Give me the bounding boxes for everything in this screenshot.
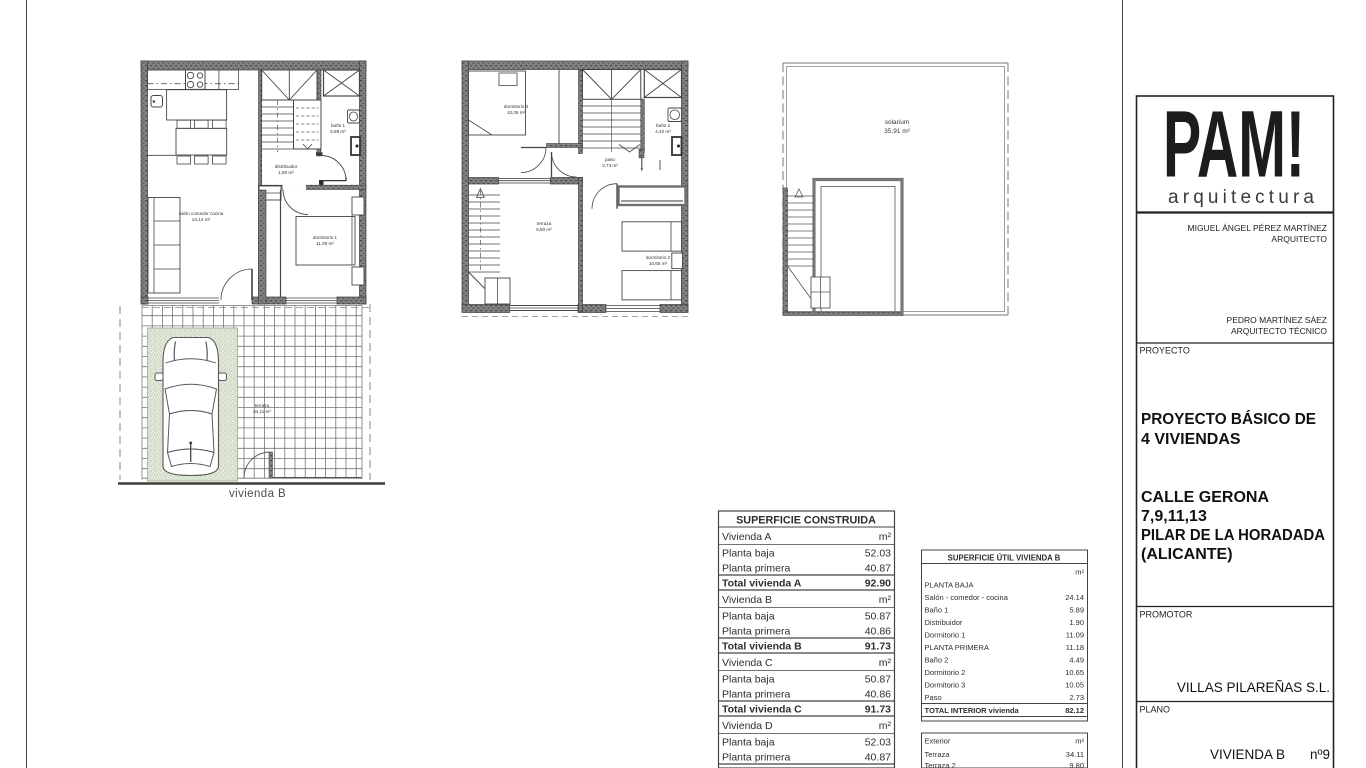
- svg-text:35,91 m²: 35,91 m²: [884, 128, 910, 135]
- svg-text:4,40 m²: 4,40 m²: [655, 129, 671, 134]
- svg-text:Vivienda A: Vivienda A: [722, 531, 771, 543]
- svg-text:Dormitorio 3: Dormitorio 3: [925, 681, 966, 690]
- svg-text:11.18: 11.18: [1066, 643, 1084, 652]
- svg-text:34.11: 34.11: [1066, 750, 1084, 759]
- svg-text:m²: m²: [1075, 568, 1084, 577]
- svg-text:Baño 1: Baño 1: [925, 606, 949, 615]
- svg-text:m²: m²: [1075, 737, 1084, 746]
- svg-text:terraza: terraza: [537, 221, 552, 226]
- svg-text:Baño 2: Baño 2: [925, 656, 949, 665]
- svg-text:m²: m²: [879, 531, 892, 543]
- svg-text:Salón - comedor - cocina: Salón - comedor - cocina: [925, 593, 1009, 602]
- svg-text:10,65 m²: 10,65 m²: [649, 261, 668, 266]
- svg-text:ARQUITECTO: ARQUITECTO: [1271, 234, 1327, 244]
- svg-text:Planta baja: Planta baja: [722, 737, 775, 749]
- svg-text:10,05 m²: 10,05 m²: [507, 110, 526, 115]
- svg-text:1.90: 1.90: [1069, 618, 1084, 627]
- svg-text:Dormitorio 2: Dormitorio 2: [925, 668, 966, 677]
- svg-text:SUPERFICIE CONSTRUIDA: SUPERFICIE CONSTRUIDA: [736, 515, 876, 527]
- svg-text:Planta baja: Planta baja: [722, 674, 775, 686]
- svg-text:8,80 m²: 8,80 m²: [536, 227, 552, 232]
- svg-text:Planta primera: Planta primera: [722, 689, 790, 701]
- svg-text:PLANTA PRIMERA: PLANTA PRIMERA: [925, 643, 989, 652]
- svg-text:Vivienda B: Vivienda B: [722, 594, 772, 606]
- svg-text:40.86: 40.86: [865, 626, 891, 638]
- svg-text:Planta baja: Planta baja: [722, 548, 775, 560]
- svg-text:PEDRO MARTÍNEZ SÁEZ: PEDRO MARTÍNEZ SÁEZ: [1227, 315, 1327, 325]
- svg-text:10.65: 10.65: [1065, 668, 1084, 677]
- svg-text:VILLAS PILAREÑAS S.L.: VILLAS PILAREÑAS S.L.: [1177, 680, 1330, 695]
- svg-text:4.49: 4.49: [1069, 656, 1084, 665]
- svg-text:TOTAL INTERIOR vivienda: TOTAL INTERIOR vivienda: [925, 706, 1020, 715]
- svg-text:52.03: 52.03: [865, 737, 891, 749]
- svg-text:10.05: 10.05: [1065, 681, 1084, 690]
- svg-text:5,89 m²: 5,89 m²: [330, 129, 346, 134]
- svg-text:(ALICANTE): (ALICANTE): [1141, 546, 1233, 563]
- svg-text:PAM!: PAM!: [1163, 92, 1305, 198]
- svg-text:CALLE GERONA: CALLE GERONA: [1141, 489, 1269, 506]
- svg-text:m²: m²: [879, 720, 892, 732]
- svg-text:91.73: 91.73: [865, 641, 891, 653]
- svg-text:PROMOTOR: PROMOTOR: [1140, 610, 1193, 620]
- svg-text:7,9,11,13: 7,9,11,13: [1141, 508, 1207, 525]
- svg-text:PLANO: PLANO: [1140, 705, 1171, 715]
- svg-text:2.73: 2.73: [1069, 693, 1084, 702]
- svg-text:Planta primera: Planta primera: [722, 752, 790, 764]
- svg-text:52.03: 52.03: [865, 548, 891, 560]
- svg-text:2,73 m²: 2,73 m²: [602, 163, 618, 168]
- svg-text:Planta primera: Planta primera: [722, 563, 790, 575]
- svg-text:92.90: 92.90: [865, 578, 891, 590]
- svg-text:dormitorio 1: dormitorio 1: [313, 235, 338, 240]
- svg-text:Paso: Paso: [925, 693, 942, 702]
- svg-text:9.80: 9.80: [1069, 761, 1084, 768]
- svg-text:Terraza 2: Terraza 2: [925, 761, 956, 768]
- svg-text:Total vivienda B: Total vivienda B: [722, 641, 802, 653]
- svg-text:PROYECTO: PROYECTO: [1140, 346, 1190, 356]
- svg-text:SUPERFICIE ÚTIL VIVIENDA B: SUPERFICIE ÚTIL VIVIENDA B: [948, 554, 1061, 563]
- svg-text:40.87: 40.87: [865, 752, 891, 764]
- svg-text:paso: paso: [605, 157, 615, 162]
- svg-text:nº9: nº9: [1310, 747, 1330, 762]
- svg-text:24.14: 24.14: [1065, 593, 1084, 602]
- svg-text:terraza: terraza: [255, 403, 270, 408]
- svg-text:5.89: 5.89: [1069, 606, 1084, 615]
- svg-text:Distribuidor: Distribuidor: [925, 618, 963, 627]
- svg-text:Dormitorio 1: Dormitorio 1: [925, 631, 966, 640]
- svg-text:VIVIENDA B: VIVIENDA B: [1210, 747, 1285, 762]
- svg-text:24,14 m²: 24,14 m²: [192, 217, 211, 222]
- svg-text:PROYECTO BÁSICO DE: PROYECTO BÁSICO DE: [1141, 409, 1316, 428]
- svg-text:ARQUITECTO TÉCNICO: ARQUITECTO TÉCNICO: [1231, 326, 1327, 336]
- svg-text:Total vivienda A: Total vivienda A: [722, 578, 802, 590]
- svg-text:40.87: 40.87: [865, 563, 891, 575]
- svg-text:m²: m²: [879, 657, 892, 669]
- svg-text:50.87: 50.87: [865, 674, 891, 686]
- svg-text:MIGUEL ÁNGEL PÉREZ MARTÍNEZ: MIGUEL ÁNGEL PÉREZ MARTÍNEZ: [1188, 223, 1328, 233]
- svg-text:dormitorio 2: dormitorio 2: [646, 255, 671, 260]
- svg-text:40.86: 40.86: [865, 689, 891, 701]
- svg-text:m²: m²: [879, 594, 892, 606]
- svg-text:Terraza: Terraza: [925, 750, 951, 759]
- svg-text:82.12: 82.12: [1065, 706, 1084, 715]
- svg-text:91.73: 91.73: [865, 704, 891, 716]
- svg-text:Total vivienda C: Total vivienda C: [722, 704, 802, 716]
- svg-text:baño 2: baño 2: [656, 123, 670, 128]
- svg-text:50.87: 50.87: [865, 611, 891, 623]
- svg-text:vivienda B: vivienda B: [229, 488, 286, 500]
- svg-text:Planta primera: Planta primera: [722, 626, 790, 638]
- svg-text:11.09: 11.09: [1066, 631, 1084, 640]
- svg-text:4 VIVIENDAS: 4 VIVIENDAS: [1141, 431, 1241, 448]
- svg-text:1,80 m²: 1,80 m²: [278, 170, 294, 175]
- svg-text:baño 1: baño 1: [331, 123, 345, 128]
- svg-text:salón comedor cocina: salón comedor cocina: [179, 211, 224, 216]
- svg-text:11,09 m²: 11,09 m²: [316, 241, 334, 246]
- svg-text:Vivienda D: Vivienda D: [722, 720, 773, 732]
- svg-text:distribuidor: distribuidor: [275, 164, 298, 169]
- svg-text:dormitorio 3: dormitorio 3: [504, 104, 529, 109]
- svg-text:solarium: solarium: [885, 119, 910, 126]
- svg-text:PLANTA BAJA: PLANTA BAJA: [925, 581, 974, 590]
- svg-text:PILAR DE LA HORADADA: PILAR DE LA HORADADA: [1141, 527, 1325, 544]
- svg-text:Planta baja: Planta baja: [722, 611, 775, 623]
- svg-text:34,11 m²: 34,11 m²: [253, 409, 271, 414]
- svg-text:Exterior: Exterior: [925, 737, 951, 746]
- svg-text:Vivienda C: Vivienda C: [722, 657, 773, 669]
